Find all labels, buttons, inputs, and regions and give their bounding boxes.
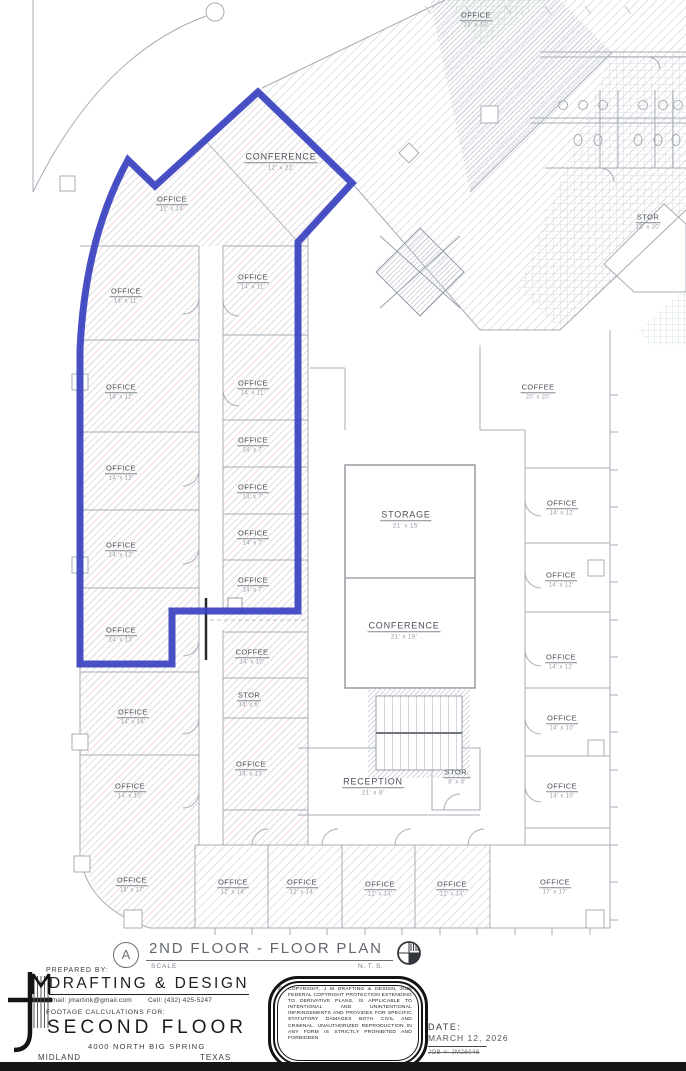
room-name: OFFICE [217,877,249,888]
room-label: OFFICE14' x 10' [114,781,146,799]
room-name: OFFICE [546,498,578,509]
scale-value: N. T. S. [358,963,383,970]
project-state: TEXAS [200,1053,231,1062]
room-label: RECEPTION21' x 8' [342,776,404,796]
room-name: OFFICE [235,759,267,770]
room-name: STORAGE [380,509,431,521]
email-text: Email: jmartink@gmail.com [47,997,132,1004]
room-dimensions: 14' x 7' [237,540,269,546]
room-name: OFFICE [545,652,577,663]
room-dimensions: 21' x 15' [380,522,431,529]
room-name: RECEPTION [342,776,404,788]
room-dimensions: 14' x 11' [237,390,269,396]
room-label: OFFICE12' x 14' [156,194,188,212]
room-dimensions: 14' x 10' [235,659,270,665]
room-name: OFFICE [546,781,578,792]
room-label: OFFICE14' x 11' [237,272,269,290]
room-dimensions: 14' x 7' [237,587,269,593]
date-block: DATE: MARCH 12, 2026 ————————————— JOB #… [428,1022,509,1056]
plan-title: 2ND FLOOR - FLOOR PLAN [149,940,383,957]
bottom-page-bar [0,1062,686,1071]
copyright-symbol: © [278,987,282,993]
room-label: OFFICE14' x 12' [545,570,577,588]
room-dimensions: 14' x 12' [545,582,577,588]
room-dimensions: 14' x 14' [117,719,149,725]
room-dimensions: 21' x 18' [367,633,440,640]
room-label: OFFICE14' x 12' [546,498,578,516]
room-dimensions: 20' x 20' [521,394,556,400]
room-label: OFFICE12' x 14' [286,877,318,895]
room-dimensions: 14' x 10' [546,725,578,731]
room-label: COFFEE20' x 20' [521,382,556,400]
room-dimensions: 17' x 17' [539,889,571,895]
room-label: CONFERENCE21' x 18' [367,620,440,640]
room-label: OFFICE14' x 12' [545,652,577,670]
floor-plan-drawing [0,0,686,940]
room-name: OFFICE [539,877,571,888]
room-label: CONFERENCE12' x 22' [244,151,317,171]
room-name: OFFICE [237,272,269,283]
room-dimensions: 14' x 11' [110,298,142,304]
room-name: STOR. [444,767,471,778]
project-title: SECOND FLOOR [47,1017,247,1039]
drawing-sheet: OFFICE12' x 10'CONFERENCE12' x 22'OFFICE… [0,0,686,1071]
room-label: OFFICE14' x 10' [546,781,578,799]
room-dimensions: 14' x 13' [235,771,267,777]
room-name: OFFICE [286,877,318,888]
room-dimensions: 14' x 12' [546,510,578,516]
room-name: OFFICE [237,528,269,539]
room-name: CONFERENCE [244,151,317,163]
room-dimensions: 14' x 10' [114,793,146,799]
room-dimensions: 8' x 8' [444,779,471,785]
room-label: OFFICE12' x 10' [460,10,492,28]
room-dimensions: 18' x 17' [116,887,148,893]
copyright-stamp: © COPYRIGHT, J M DRAFTING & DESIGN, 2026… [268,976,428,1070]
room-name: OFFICE [237,482,269,493]
room-dimensions: 14' x 7' [237,494,269,500]
project-address: 4000 NORTH BIG SPRING [88,1042,205,1051]
room-name: OFFICE [117,707,149,718]
jm-logo [6,970,54,1062]
company-name: DRAFTING & DESIGN [49,975,249,995]
contact-line: Email: jmartink@gmail.com Cell: (432) 42… [47,997,226,1004]
room-label: OFFICE14' x 10' [546,713,578,731]
room-label: OFFICE12' x 14' [364,879,396,897]
room-name: OFFICE [116,875,148,886]
room-label: OFFICE14' x 13' [105,625,137,643]
room-dimensions: 14' x 12' [105,552,137,558]
room-name: OFFICE [364,879,396,890]
room-dimensions: 14' x 6' [237,702,261,708]
room-dimensions: 12' x 14' [436,891,468,897]
room-name: OFFICE [546,713,578,724]
room-label: OFFICE14' x 11' [110,286,142,304]
room-label: OFFICE14' x 11' [237,378,269,396]
room-dimensions: 12' x 14' [217,889,249,895]
room-label: OFFICE14' x 14' [117,707,149,725]
date-value: MARCH 12, 2026 [428,1033,509,1043]
room-name: OFFICE [237,378,269,389]
room-label: OFFICE14' x 7' [237,575,269,593]
room-dimensions: 12' x 22' [244,164,317,171]
footage-label: FOOTAGE CALCULATIONS FOR: [46,1009,165,1016]
room-name: OFFICE [105,463,137,474]
room-label: OFFICE14' x 12' [105,382,137,400]
room-dimensions: 14' x 12' [545,664,577,670]
room-dimensions: 14' x 10' [546,793,578,799]
room-name: STOR [636,212,661,223]
job-number: JOB #: JM26046 [428,1050,509,1056]
room-name: OFFICE [237,435,269,446]
stairs [368,688,470,778]
room-dimensions: 14' x 12' [105,394,137,400]
room-dimensions: 12' x 14' [286,889,318,895]
room-name: STOR [237,690,261,701]
room-dimensions: 21' x 8' [342,789,404,796]
room-dimensions: 18' x 20' [636,224,661,230]
room-name: OFFICE [105,382,137,393]
room-name: OFFICE [110,286,142,297]
room-name: COFFEE [235,647,270,658]
room-name: OFFICE [237,575,269,586]
room-label: OFFICE14' x 12' [105,463,137,481]
stamp-text: COPYRIGHT, J M DRAFTING & DESIGN, 2026 F… [288,987,412,1042]
room-label: STOR14' x 6' [237,690,261,708]
room-label: OFFICE14' x 13' [235,759,267,777]
room-name: OFFICE [436,879,468,890]
room-name: OFFICE [105,625,137,636]
cell-text: Cell: (432) 425-5247 [148,997,212,1004]
date-label: DATE: [428,1022,509,1032]
room-label: OFFICE18' x 17' [116,875,148,893]
room-label: OFFICE14' x 7' [237,528,269,546]
north-arrow-icon [394,938,424,968]
room-dimensions: 12' x 14' [364,891,396,897]
room-dimensions: 12' x 14' [156,206,188,212]
room-label: COFFEE14' x 10' [235,647,270,665]
room-name: OFFICE [105,540,137,551]
room-dimensions: 14' x 7' [237,447,269,453]
room-label: OFFICE12' x 14' [436,879,468,897]
room-label: STORAGE21' x 15' [380,509,431,529]
room-label: OFFICE14' x 7' [237,482,269,500]
room-label: OFFICE14' x 12' [105,540,137,558]
title-block: PREPARED BY: DRAFTING & DESIGN Email: jm… [0,964,270,1062]
room-label: OFFICE12' x 14' [217,877,249,895]
room-dimensions: 12' x 10' [460,22,492,28]
room-name: OFFICE [460,10,492,21]
room-label: STOR18' x 20' [636,212,661,230]
prepared-by-label: PREPARED BY: [46,967,109,974]
plan-title-underline [146,960,393,961]
room-name: OFFICE [114,781,146,792]
room-dimensions: 14' x 13' [105,637,137,643]
room-name: OFFICE [545,570,577,581]
room-name: CONFERENCE [367,620,440,632]
room-name: COFFEE [521,382,556,393]
room-label: OFFICE17' x 17' [539,877,571,895]
room-label: OFFICE14' x 7' [237,435,269,453]
project-city: MIDLAND [38,1053,81,1062]
room-label: STOR.8' x 8' [444,767,471,785]
room-name: OFFICE [156,194,188,205]
room-dimensions: 14' x 11' [237,284,269,290]
room-dimensions: 14' x 12' [105,475,137,481]
